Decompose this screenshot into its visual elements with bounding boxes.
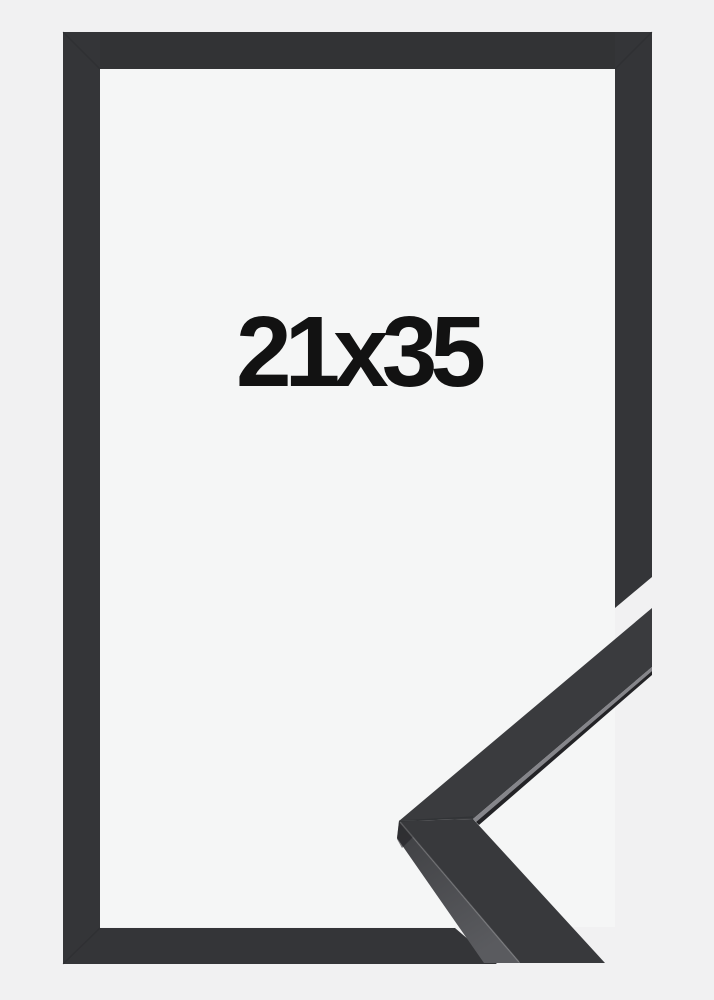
frame-illustration <box>0 0 714 1000</box>
frame-left-bar <box>63 32 100 964</box>
frame-inner-area <box>100 69 615 927</box>
product-image: 21x35 <box>0 0 714 1000</box>
frame-bottom-bar <box>63 928 497 964</box>
frame-top-bar <box>63 32 652 69</box>
size-label: 21x35 <box>63 302 652 402</box>
